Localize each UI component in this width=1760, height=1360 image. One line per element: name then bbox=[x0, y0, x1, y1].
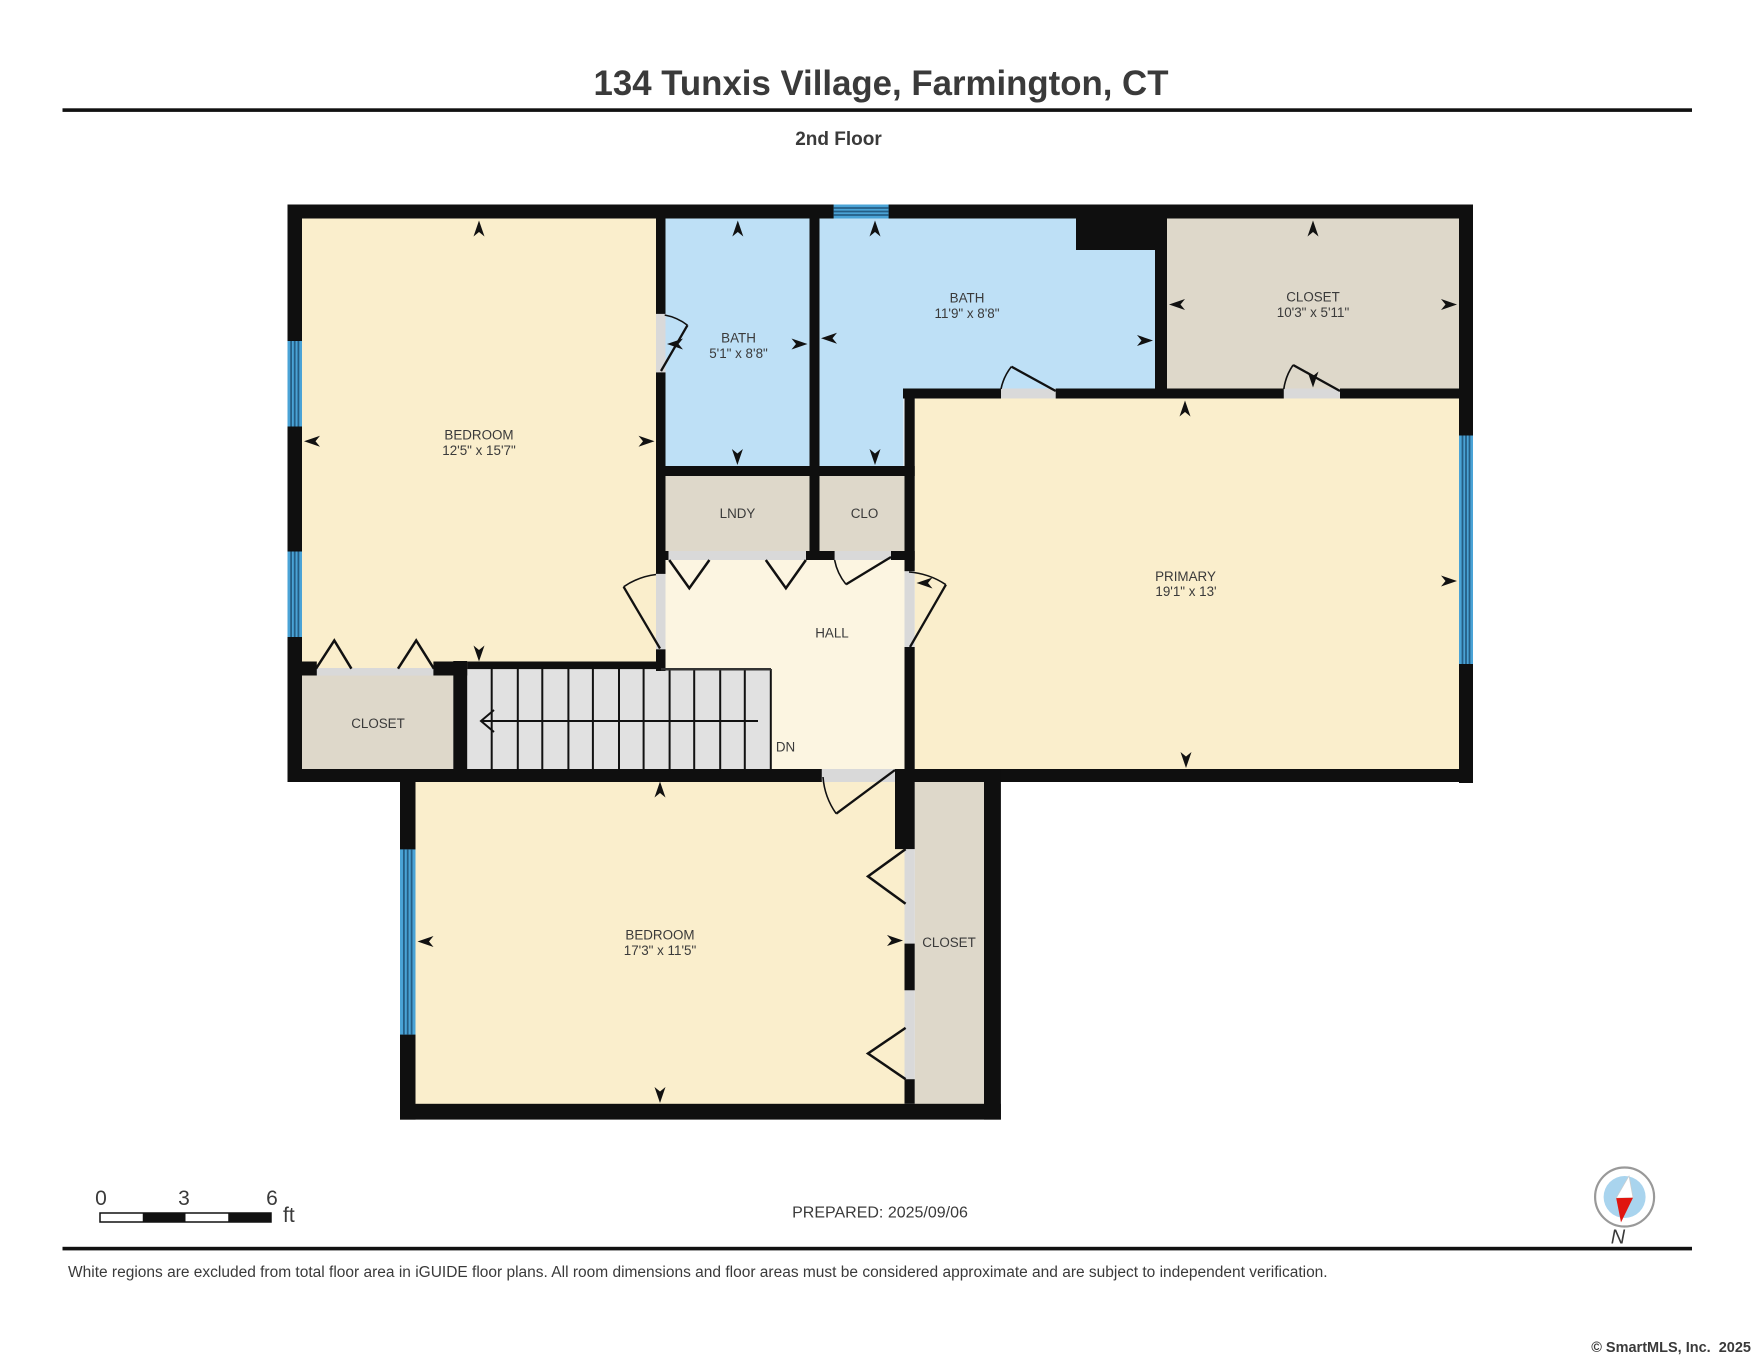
svg-text:DN: DN bbox=[776, 740, 795, 755]
svg-text:LNDY: LNDY bbox=[720, 506, 756, 521]
svg-text:ft: ft bbox=[283, 1204, 295, 1227]
svg-text:17'3" x 11'5": 17'3" x 11'5" bbox=[624, 943, 697, 958]
svg-text:11'9" x 8'8": 11'9" x 8'8" bbox=[935, 306, 1000, 321]
svg-text:BEDROOM: BEDROOM bbox=[625, 928, 694, 943]
svg-text:12'5" x 15'7": 12'5" x 15'7" bbox=[442, 443, 516, 458]
svg-text:CLOSET: CLOSET bbox=[351, 716, 405, 731]
svg-text:PRIMARY: PRIMARY bbox=[1155, 569, 1216, 584]
svg-text:BATH: BATH bbox=[721, 331, 756, 346]
svg-text:2nd Floor: 2nd Floor bbox=[795, 129, 882, 150]
svg-text:19'1" x 13': 19'1" x 13' bbox=[1155, 584, 1216, 599]
svg-text:134 Tunxis Village, Farmington: 134 Tunxis Village, Farmington, CT bbox=[594, 64, 1169, 103]
svg-text:White regions are excluded fro: White regions are excluded from total fl… bbox=[68, 1264, 1328, 1281]
svg-text:0: 0 bbox=[95, 1187, 107, 1210]
svg-text:BEDROOM: BEDROOM bbox=[444, 428, 513, 443]
svg-text:10'3" x 5'11": 10'3" x 5'11" bbox=[1277, 305, 1350, 320]
svg-text:HALL: HALL bbox=[815, 626, 849, 641]
svg-text:N: N bbox=[1611, 1227, 1626, 1249]
svg-text:BATH: BATH bbox=[950, 291, 985, 306]
svg-text:CLOSET: CLOSET bbox=[922, 935, 976, 950]
svg-text:3: 3 bbox=[178, 1187, 190, 1210]
svg-text:CLOSET: CLOSET bbox=[1286, 290, 1340, 305]
svg-text:© SmartMLS, Inc. 2025: © SmartMLS, Inc. 2025 bbox=[1591, 1340, 1751, 1356]
svg-text:CLO: CLO bbox=[851, 506, 879, 521]
svg-text:PREPARED: 2025/09/06: PREPARED: 2025/09/06 bbox=[792, 1205, 968, 1222]
svg-text:5'1" x 8'8": 5'1" x 8'8" bbox=[709, 346, 768, 361]
svg-text:6: 6 bbox=[266, 1187, 278, 1210]
